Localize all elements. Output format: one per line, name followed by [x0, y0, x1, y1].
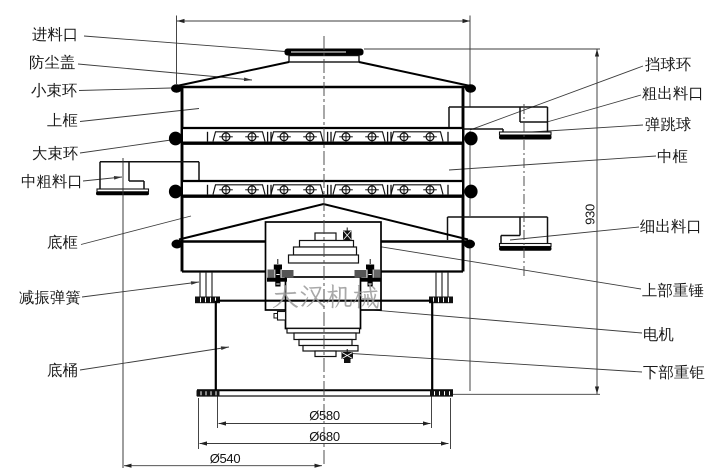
svg-text:Ø540: Ø540 [210, 451, 241, 466]
svg-text:Ø680: Ø680 [309, 429, 340, 444]
svg-text:Ø580: Ø580 [309, 408, 340, 423]
svg-text:930: 930 [583, 204, 598, 225]
